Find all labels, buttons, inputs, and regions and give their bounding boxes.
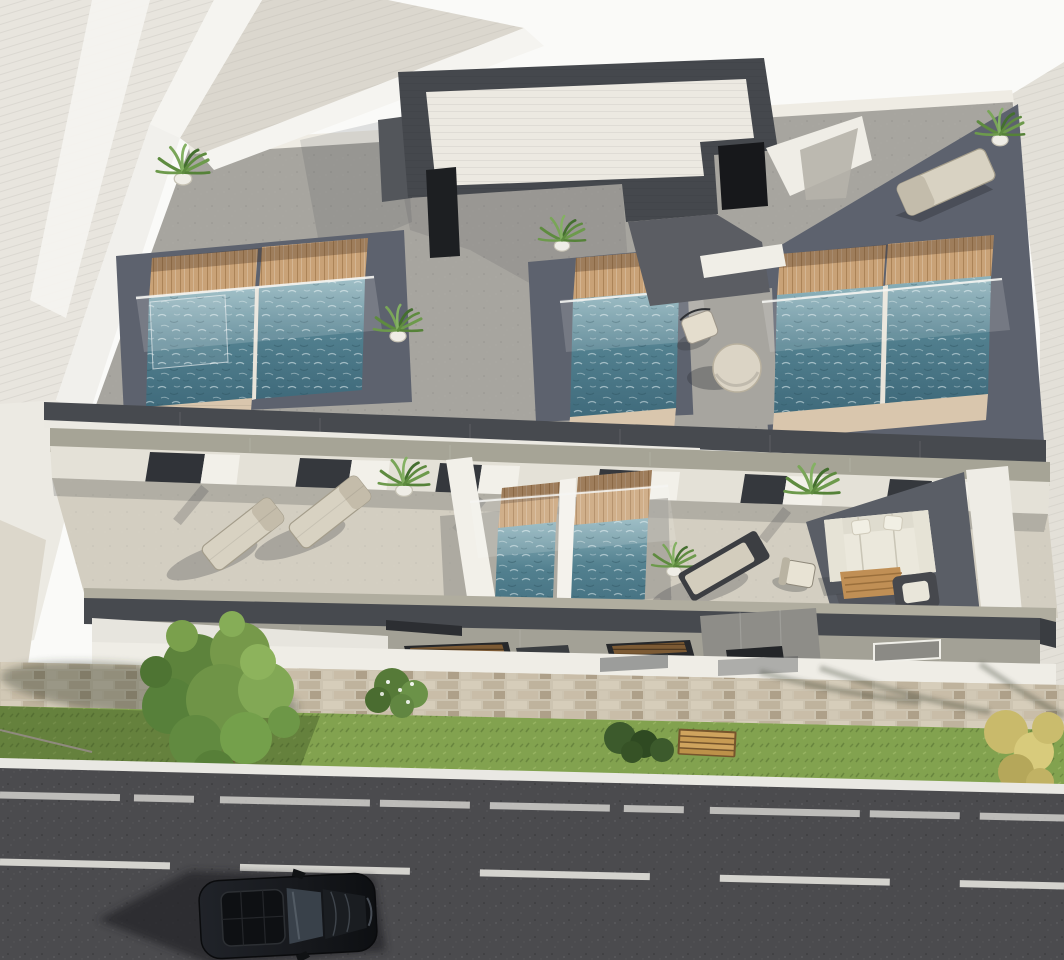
- park-bench: [677, 729, 736, 758]
- glass-door: [740, 474, 787, 508]
- glass-door: [145, 452, 205, 486]
- car-windshield: [287, 886, 324, 944]
- lower-fascia-end: [1040, 618, 1056, 648]
- penthouse-shaft-opening: [426, 167, 460, 258]
- main-building: [44, 0, 1058, 696]
- glass-panel: [150, 295, 228, 369]
- facade-window: [874, 640, 940, 662]
- architectural-render: [0, 0, 1064, 960]
- penthouse-door-opening: [718, 142, 768, 210]
- wall-pier: [200, 454, 240, 488]
